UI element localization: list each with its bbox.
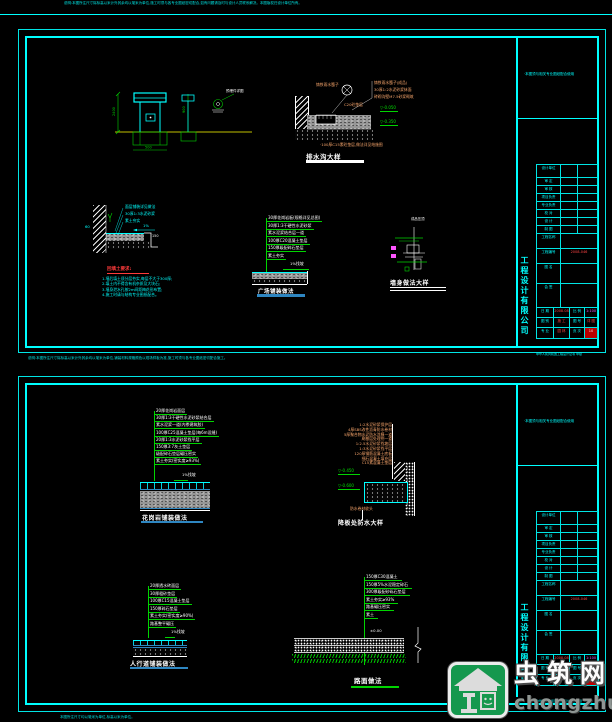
detail-sidewalk-paving: 20厚透水砖面层 30厚粗砂垫层 100厚C15混凝土垫层 150厚碎石垫层 素… xyxy=(125,565,237,675)
tb-cell xyxy=(561,512,578,524)
elevation-value: -0.450 xyxy=(341,468,354,473)
elevation-line xyxy=(380,125,398,126)
leader-line xyxy=(392,424,393,479)
layer-label: 素土夯实(密实度≥90%) xyxy=(148,614,195,620)
tb-row-label: 设 计 xyxy=(537,218,561,225)
layer-label: 150厚碎石垫层 xyxy=(148,607,180,613)
tb-cell xyxy=(578,512,597,524)
layer-label: 20厚透水砖面层 xyxy=(148,584,181,590)
sidewalk-title-underline xyxy=(130,667,188,669)
slope-label: 1%找坡 xyxy=(290,262,304,267)
elevation-value: -0.350 xyxy=(383,119,396,124)
tb-cell xyxy=(561,549,578,556)
tb-cell xyxy=(578,165,597,177)
coping-underline-1 xyxy=(390,287,446,288)
waterproofing-title: 降板处防水大样 xyxy=(338,518,384,527)
tb-row-label: 工程编号 xyxy=(537,249,561,263)
section-bottom-line xyxy=(133,656,187,657)
tb-cell xyxy=(561,218,578,225)
tb-row-label: 设计单位 xyxy=(537,165,561,177)
slope-label: 1% xyxy=(143,224,149,229)
svg-text:500: 500 xyxy=(145,146,152,150)
tb-cell xyxy=(561,573,578,580)
tb-cell xyxy=(561,264,597,283)
tb-row-label: 工程名称 xyxy=(537,234,561,248)
titleblock-divider xyxy=(516,36,518,346)
tb-cell xyxy=(578,210,597,217)
tb-row-label: 校 对 xyxy=(537,557,561,564)
drain-bottom-note: ·100厚C15素砼垫层,做法详见结施图 xyxy=(320,142,383,148)
company-name-vertical: 工程设计有限公司 xyxy=(519,256,530,352)
tb-cell xyxy=(561,202,578,209)
wp-note-9: C15素混凝土垫层 xyxy=(362,460,392,466)
tb-cell xyxy=(578,186,597,193)
tb-row-label: 工程编号 xyxy=(537,596,561,610)
tb-cell xyxy=(561,565,578,572)
tb-cell xyxy=(561,525,578,532)
tb-cell-project-no: 2008-046 xyxy=(561,596,597,610)
elevation-line xyxy=(380,111,398,112)
elevation-mark: ▽-0.450 xyxy=(338,468,354,473)
watermark: 虫筑网 chongzhu.cn xyxy=(440,652,612,722)
drain-title-underline xyxy=(306,160,364,163)
watermark-logo xyxy=(448,662,508,718)
section-edge-line xyxy=(307,271,308,284)
elevation-value: -0.050 xyxy=(383,105,396,110)
tb-row-label: 工程名称 xyxy=(537,581,561,595)
wall-label-3: 素土夯实 xyxy=(125,219,140,224)
tb-cell xyxy=(578,549,597,556)
tb-row-label: 专业负责 xyxy=(537,549,561,556)
tb-grid-value: 详 图 xyxy=(585,318,597,327)
layer-label: 素水泥浆一道(内掺建筑胶) xyxy=(154,423,205,429)
slope-arrow xyxy=(174,480,188,481)
tb-row-label: 校 对 xyxy=(537,210,561,217)
tb-grid-value: 1:100 xyxy=(585,308,597,317)
layer-label: 30厚1:3干硬性水泥砂浆 xyxy=(266,224,314,230)
titleblock-note: ·本图须与相关专业图纸配合使用 xyxy=(524,72,574,77)
titleblock-rule xyxy=(518,465,598,466)
svg-text:预埋件详图: 预埋件详图 xyxy=(226,88,244,93)
fill-note-title: 回填土要求: xyxy=(107,266,131,272)
tb-cell xyxy=(561,226,578,233)
plaza-title-underline xyxy=(257,294,305,297)
slope-label: 1%找坡 xyxy=(171,630,185,635)
watermark-domain: chongzhu.cn xyxy=(514,692,612,714)
layer-label: 素土夯实(密实度≥93%) xyxy=(154,459,201,465)
tb-row-label: 项目负责 xyxy=(537,194,561,201)
wall-label-1: 面层铺装详见做法 xyxy=(125,205,155,210)
tb-grid-value: 2008.08 xyxy=(554,308,570,317)
tb-grid-label: 日 期 xyxy=(537,308,554,317)
layer-label: 100厚C25混凝土垫层(每6m设缝) xyxy=(154,431,219,437)
tb-cell xyxy=(561,533,578,540)
drain-note-3: 砖砌沟壁M7.5砂浆砌筑 xyxy=(374,94,414,100)
tb-row-label: 制 图 xyxy=(537,573,561,580)
tb-cell xyxy=(578,194,597,201)
titleblock-divider xyxy=(516,383,518,697)
wall-hatch xyxy=(394,462,405,481)
tb-grid-value: 施 工 xyxy=(554,318,570,327)
tb-row-label: 审 定 xyxy=(537,178,561,185)
layer-label: 素土夯实 xyxy=(266,254,286,260)
tb-grid-label: 图 号 xyxy=(570,318,585,327)
coping-title: 墙身做法大样 xyxy=(390,278,429,287)
tb-cell xyxy=(578,533,597,540)
drain-note-1: 铸铁雨水篦子(成品) xyxy=(374,80,407,86)
step-dim: 150 xyxy=(152,235,158,239)
layer-label: 20厚1:3水泥砂浆找平层 xyxy=(154,438,202,444)
tb-cell xyxy=(578,557,597,564)
coping-label: 成品压顶 xyxy=(411,218,425,222)
layer-label: 150厚级配碎石垫层 xyxy=(266,246,306,252)
watermark-brand: 虫筑网 xyxy=(514,654,612,690)
house-icon xyxy=(451,665,505,715)
tb-row-label: 图 名 xyxy=(537,611,561,630)
paver-band xyxy=(140,482,210,490)
slope-arrow xyxy=(165,637,175,638)
tb-cell-project-no: 2008-046 xyxy=(561,249,597,263)
detail-drain: 铸铁雨水篦子 铸铁雨水篦子(成品) 30厚1:2水泥砂浆抹面 砖砌沟壁M7.5砂… xyxy=(292,76,460,172)
tb-cell xyxy=(578,218,597,225)
detail-granite-paving: 20厚花岗岩面层 30厚1:3干硬性水泥砂浆结合层 素水泥浆一道(内掺建筑胶) … xyxy=(128,404,260,529)
tb-grid-label: 图 别 xyxy=(537,318,554,327)
tb-cell xyxy=(561,581,597,595)
tb-cell xyxy=(561,631,597,654)
tb-row-label: 审 核 xyxy=(537,533,561,540)
top-rule xyxy=(0,14,612,15)
base-band xyxy=(133,648,187,655)
slope-arrow xyxy=(283,269,309,270)
tb-cell xyxy=(561,284,597,307)
drain-mid-note: C20砼垫层 xyxy=(344,102,363,108)
tb-row-label: 审 定 xyxy=(537,525,561,532)
grate-label: 铸铁雨水篦子 xyxy=(316,82,339,88)
tb-cell xyxy=(578,178,597,185)
detail-wall-edge: 面层铺装详见做法 30厚1:3水泥砂浆 素土夯实 1% 60 150 回填土要求… xyxy=(85,195,235,303)
detail-waterproofing: 1:2水泥砂浆保护层 4厚SBS改性沥青防水卷材 5厚聚合物水泥防水涂膜一道 刷… xyxy=(328,420,448,538)
tb-row-label: 项目负责 xyxy=(537,541,561,548)
tb-grid-label: 页 次 xyxy=(570,328,585,338)
elevation-line xyxy=(338,489,360,490)
layer-label: 路基整平碾压 xyxy=(148,622,176,628)
road-title: 路面做法 xyxy=(354,675,382,685)
detail-plaza-paving: 30厚花岗岩板(规格详见总图) 30厚1:3干硬性水泥砂浆 素水泥浆结合层一道 … xyxy=(250,205,382,305)
tb-grid-value: 10 xyxy=(585,328,597,338)
wall-label-2: 30厚1:3水泥砂浆 xyxy=(125,212,155,217)
tb-cell xyxy=(561,186,578,193)
elevation-mark: ▽-0.600 xyxy=(338,483,354,488)
fill-note-4: 4.施工时请与结构专业图纸配合。 xyxy=(102,293,159,298)
svg-text:2400: 2400 xyxy=(112,107,116,116)
tb-row-label: 设 计 xyxy=(537,565,561,572)
tb-row-label: 设计单位 xyxy=(537,512,561,524)
titleblock-cert: 中华人民共和国工程设计证书 甲级 xyxy=(536,352,600,356)
tb-row-label: 图 名 xyxy=(537,264,561,283)
top-note: 说明:本图所注尺寸除标高以米计外其余均以毫米为单位,施工时须与各专业图纸密切配合… xyxy=(64,1,604,6)
layer-label: 100厚C15混凝土垫层 xyxy=(148,599,192,605)
detail-wall-coping: 成品压顶 墙身做法大样 xyxy=(385,215,475,300)
layer-label: 100厚C20混凝土垫层 xyxy=(266,239,310,245)
granite-title-underline xyxy=(141,521,203,523)
tb-row-label: 审 核 xyxy=(537,186,561,193)
tb-cell xyxy=(578,541,597,548)
tb-cell xyxy=(578,573,597,580)
titleblock-rule xyxy=(518,118,598,119)
elevation-mark: ▽-0.050 xyxy=(380,105,396,110)
concrete-band xyxy=(140,491,210,508)
tb-cell xyxy=(578,525,597,532)
post-elevation-linework: 2400 500 900 预埋件详图 xyxy=(100,80,260,165)
tb-cell xyxy=(578,565,597,572)
elevation-line xyxy=(338,474,360,475)
tb-grid-label: 专 业 xyxy=(537,328,554,338)
tb-cell xyxy=(561,234,597,248)
tb-cell xyxy=(561,178,578,185)
dim-label: 60 xyxy=(85,225,90,230)
fill-note-underline xyxy=(107,273,149,274)
tb-cell xyxy=(561,611,597,630)
detail-road: 150厚C30混凝土 150厚5%水泥稳定碎石 300厚级配砂砾石垫层 素土夯实… xyxy=(290,565,432,695)
titleblock-note: ·本图须与相关专业图纸配合使用 xyxy=(524,419,574,424)
mid-note: 说明:本图所注尺寸除标高以米计外其余均以毫米为单位,铺装材料规格颜色以现场样板为… xyxy=(28,356,448,361)
tb-cell xyxy=(561,210,578,217)
section-bottom-line xyxy=(252,284,307,285)
tb-cell xyxy=(561,194,578,201)
drain-note-2: 30厚1:2水泥砂浆抹面 xyxy=(374,87,412,93)
elevation-value: -0.600 xyxy=(341,483,354,488)
layer-label: 30厚粗砂垫层 xyxy=(148,592,177,598)
tb-row-label: 制 图 xyxy=(537,226,561,233)
tb-cell xyxy=(578,202,597,209)
elevation-mark: ▽-0.350 xyxy=(380,119,396,124)
tb-cell xyxy=(561,541,578,548)
tb-cell xyxy=(561,557,578,564)
tb-cell xyxy=(561,165,578,177)
detail-post-elevation: 2400 500 900 预埋件详图 xyxy=(100,80,260,165)
sunken-trench xyxy=(364,482,408,503)
tb-cell xyxy=(578,226,597,233)
layer-label: 素水泥浆结合层一道 xyxy=(266,231,306,237)
coping-underline-2 xyxy=(390,290,446,291)
tb-grid-label: 比 例 xyxy=(570,308,585,317)
tb-row-label: 专业负责 xyxy=(537,202,561,209)
tb-grid-value: 园 林 xyxy=(554,328,570,338)
coping-linework xyxy=(385,215,475,277)
section-bottom-line xyxy=(140,510,210,511)
svg-text:900: 900 xyxy=(182,106,186,113)
slope-label: 1%找坡 xyxy=(182,473,196,478)
layer-label: 30厚花岗岩板(规格详见总图) xyxy=(266,216,322,222)
tb-row-label: 会 签 xyxy=(537,284,561,307)
road-title-underline xyxy=(351,686,399,689)
tb-row-label: 会 签 xyxy=(537,631,561,654)
bottom-note: 本图所注尺寸均以毫米为单位,标高以米为单位。 xyxy=(60,715,335,720)
titleblock-table: 设计单位 审 定 审 核 项目负责 专业负责 校 对 设 计 制 图 工程名称 … xyxy=(536,164,598,339)
titleblock-sheet1: ·本图须与相关专业图纸配合使用 设计单位 审 定 审 核 项目负责 专业负责 校… xyxy=(516,30,608,352)
paver-band xyxy=(133,640,187,646)
